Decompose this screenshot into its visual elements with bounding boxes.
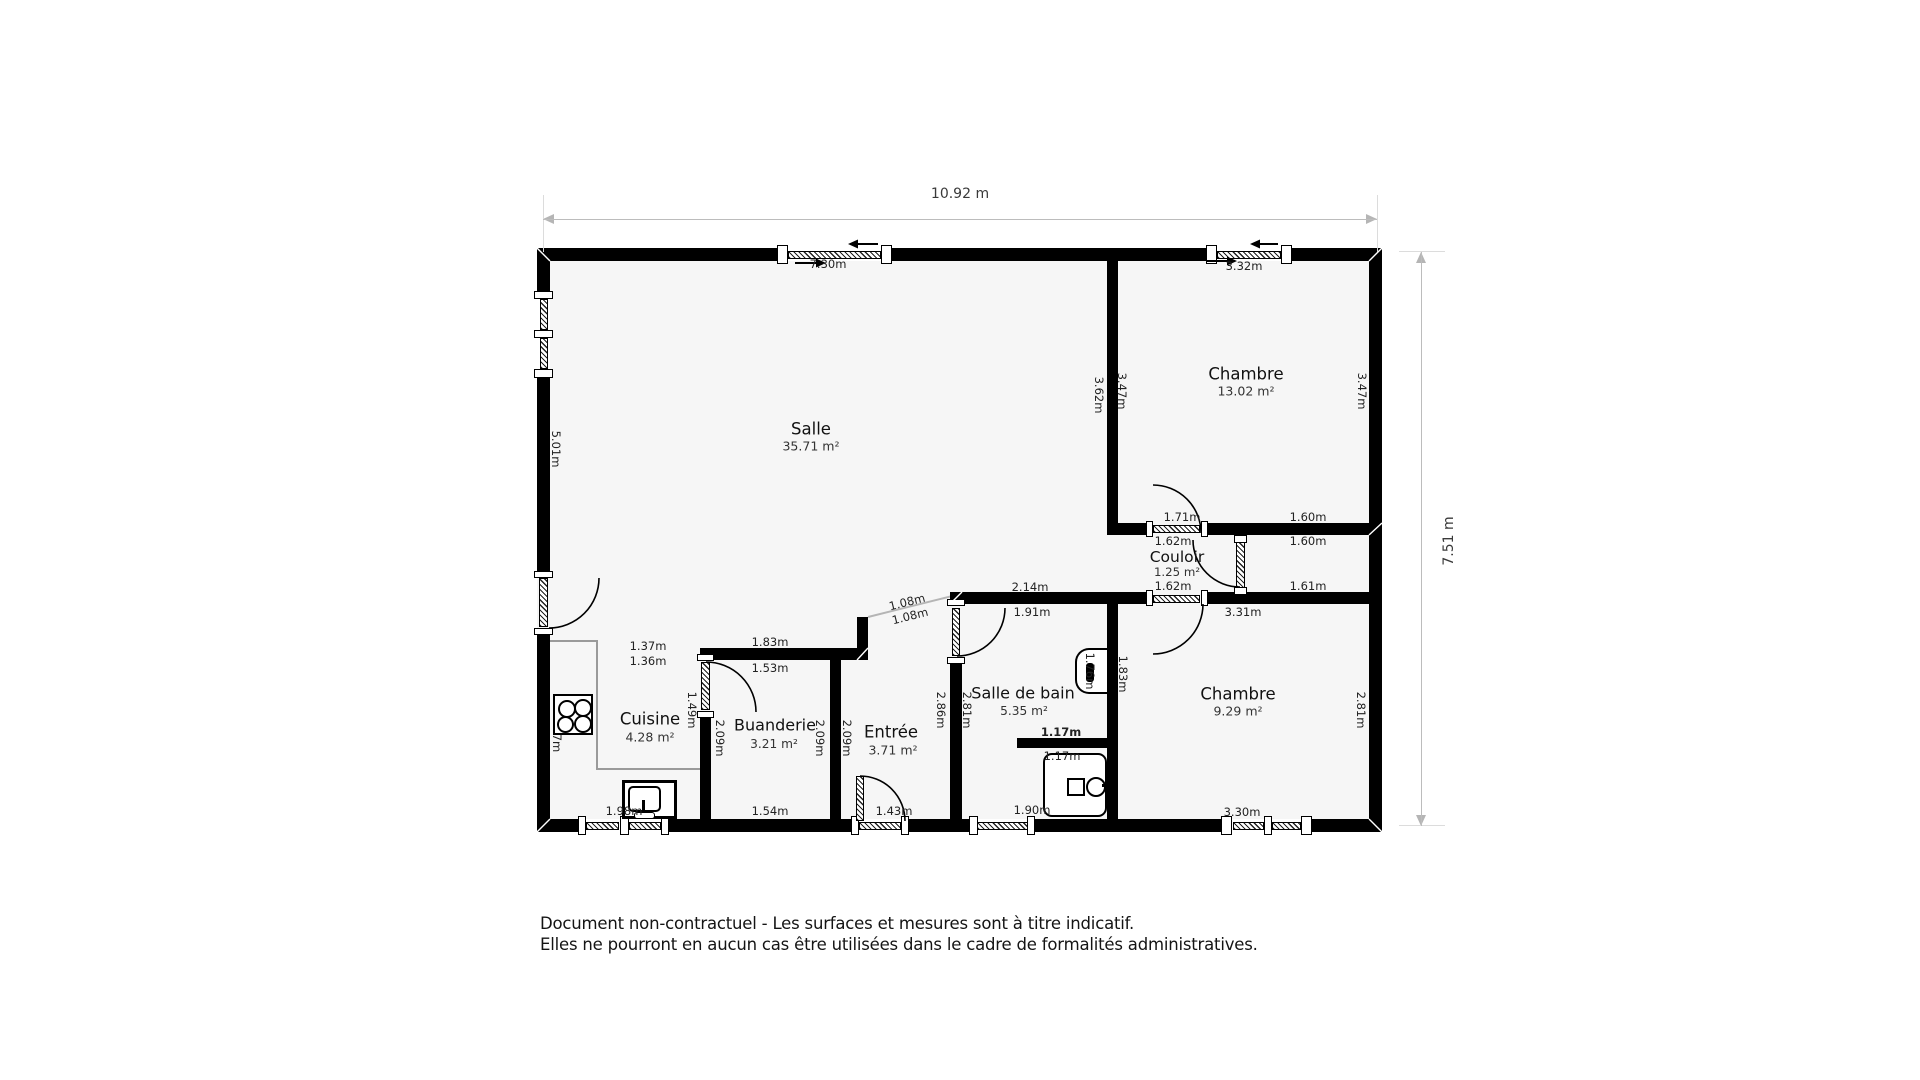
measurement-label: 2.09m <box>813 720 827 757</box>
window-post <box>881 245 892 264</box>
room-name-chambre: Chambre <box>1200 685 1275 704</box>
window-post <box>1206 245 1217 264</box>
window-post <box>578 816 586 835</box>
measurement-label: 2.09m <box>713 720 727 757</box>
room-name-salle: Salle <box>791 420 831 439</box>
window-kitchen <box>586 822 619 830</box>
room-name-entr-e: Entrée <box>864 723 918 742</box>
front-door-leaf <box>856 776 864 821</box>
wall-buanderie-top <box>700 648 868 660</box>
door-post <box>1234 535 1247 543</box>
door-leaf-chambre-bas <box>1153 595 1200 603</box>
measurement-label: 1.37m <box>630 639 667 653</box>
measurement-label: 2.09m <box>840 720 854 757</box>
room-name-buanderie: Buanderie <box>734 716 816 735</box>
measurement-label: 1.60m <box>1290 510 1327 524</box>
measurement-label: 5.01m <box>549 431 563 468</box>
window-top-right <box>1217 251 1281 259</box>
measurement-label: 1.91m <box>1014 605 1051 619</box>
front-door-sill <box>859 822 901 830</box>
measurement-label: 2.81m <box>1354 692 1368 729</box>
room-area-label: 9.29 m² <box>1213 704 1262 719</box>
measurement-label: 1.83m <box>1116 656 1130 693</box>
room-area-label: 3.71 m² <box>868 743 917 758</box>
window-post <box>1281 245 1292 264</box>
dimension-line-height <box>1421 252 1422 826</box>
disclaimer-line1: Document non-contractuel - Les surfaces … <box>540 914 1258 935</box>
door-post <box>1146 590 1153 606</box>
measurement-label: 3.62m <box>1092 377 1106 414</box>
dimension-tick <box>543 195 544 252</box>
room-area-label: 5.35 m² <box>1000 704 1048 718</box>
door-leaf-chambre-haut <box>1153 525 1200 533</box>
window-bedroom <box>1272 822 1301 830</box>
room-area-label: 1.25 m² <box>1154 565 1200 579</box>
window-post <box>534 291 553 299</box>
measurement-label: 2.14m <box>1012 580 1049 594</box>
measurement-label: 1.43m <box>876 804 913 818</box>
wall-stub-entree <box>857 617 868 660</box>
dimension-line-width <box>543 219 1377 220</box>
measurement-label: 1.17m <box>1041 725 1081 739</box>
measurement-label: 1.83m <box>752 635 789 649</box>
door-leaf-buanderie <box>701 662 710 710</box>
door-post <box>901 816 909 835</box>
measurement-label: 1.17m <box>1044 749 1081 763</box>
measurement-label: 1.60m <box>1290 534 1327 548</box>
window-bathroom <box>977 822 1028 830</box>
room-name-salle-de-bain: Salle de bain <box>971 684 1074 703</box>
window-post <box>534 330 553 338</box>
measurement-label: 1.71m <box>1164 510 1201 524</box>
measurement-label: 1.62m <box>1155 534 1192 548</box>
measurement-label: 1.76m <box>1083 653 1097 690</box>
room-area-label: 35.71 m² <box>782 439 839 454</box>
measurement-label: 1.53m <box>752 661 789 675</box>
measurement-label: 1.62m <box>1155 579 1192 593</box>
disclaimer-text: Document non-contractuel - Les surfaces … <box>540 914 1258 955</box>
dimension-tick <box>1399 825 1445 826</box>
measurement-label: 2.81m <box>960 692 974 729</box>
measurement-label: 1.54m <box>752 804 789 818</box>
room-name-cuisine: Cuisine <box>620 710 680 729</box>
wall-exterior-right <box>1369 248 1382 832</box>
measurement-label: 3.31m <box>1225 605 1262 619</box>
door-leaf-couloir <box>1236 542 1245 588</box>
wall-shower-screen <box>1017 738 1107 748</box>
disclaimer-line2: Elles ne pourront en aucun cas être util… <box>540 935 1258 956</box>
wall-sdb-chambre <box>1107 592 1118 832</box>
dimension-width-label: 10.92 m <box>931 186 989 202</box>
dimension-tick <box>1399 251 1445 252</box>
window-post <box>534 369 553 378</box>
kitchen-zone-line <box>596 640 598 769</box>
measurement-label: 1.90m <box>1014 803 1051 817</box>
door-post <box>1146 521 1153 537</box>
window-post <box>1027 816 1035 835</box>
door-post <box>1201 521 1208 537</box>
door-post <box>534 628 553 635</box>
measurement-label: 3.47m <box>1355 373 1369 410</box>
door-leaf-salle <box>539 578 548 627</box>
stove-icon <box>553 694 593 735</box>
measurement-label: 1.49m <box>685 692 699 729</box>
window-bedroom <box>1233 822 1264 830</box>
dimension-tick <box>1377 195 1378 252</box>
floorplan-canvas: 10.92 m 7.51 m Salle35.71 m²Chambre13.02… <box>0 0 1920 1080</box>
room-area-label: 4.28 m² <box>625 730 674 745</box>
measurement-label: 3.47m <box>1115 373 1129 410</box>
room-name-chambre: Chambre <box>1208 365 1283 384</box>
kitchen-zone-line <box>596 768 711 770</box>
window-left-upper <box>540 299 548 330</box>
door-post <box>697 654 714 661</box>
window-kitchen <box>629 822 661 830</box>
door-post <box>1201 590 1208 606</box>
door-post <box>534 571 553 578</box>
door-post <box>947 599 965 606</box>
room-area-label: 13.02 m² <box>1217 384 1274 399</box>
window-left-lower <box>540 338 548 369</box>
measurement-label: 1.61m <box>1290 579 1327 593</box>
room-name-couloir: Couloir <box>1150 548 1205 566</box>
measurement-label: 7.30m <box>810 257 847 271</box>
door-post <box>1234 587 1247 595</box>
window-post <box>1301 816 1312 835</box>
door-post <box>947 657 965 664</box>
measurement-label: 3.32m <box>1226 259 1263 273</box>
door-post <box>697 711 714 718</box>
measurement-label: 3.30m <box>1224 805 1261 819</box>
kitchen-zone-line <box>543 640 597 642</box>
measurement-label: 1.36m <box>630 654 667 668</box>
door-leaf-sdb <box>952 608 960 656</box>
measurement-label: 1.98m <box>606 804 643 818</box>
dimension-height-label: 7.51 m <box>1441 516 1457 565</box>
measurement-label: 7m <box>550 734 564 753</box>
window-post <box>1264 816 1272 835</box>
window-post <box>777 245 788 264</box>
measurement-label: 2.86m <box>934 692 948 729</box>
room-area-label: 3.21 m² <box>750 737 798 751</box>
window-post <box>969 816 978 835</box>
